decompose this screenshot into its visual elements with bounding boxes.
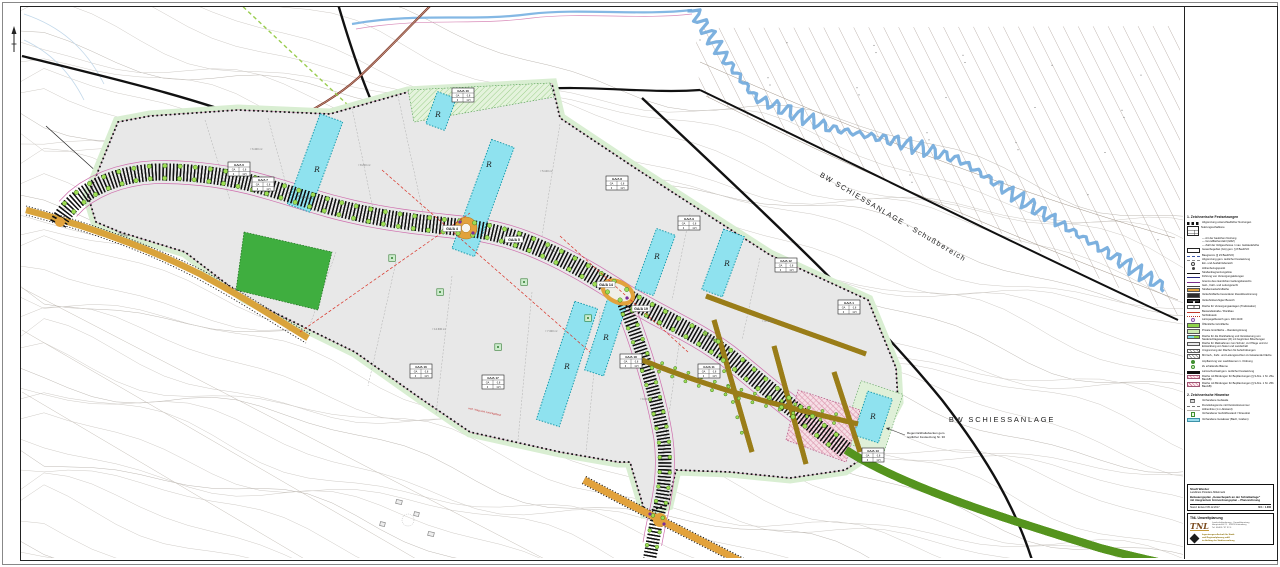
legend-sublabel: — Zahl der Vollgeschosse / max. Gebäudeh…: [1202, 244, 1274, 247]
legend-row: Zu erhaltende Bäume: [1187, 365, 1274, 369]
legend-row: Abgrenzung gem. textlicher Festsetzung: [1187, 258, 1274, 261]
legend-row: Führung von Versorgungsleitungen: [1187, 275, 1274, 278]
legend-label: Gewerbegebiet (GA) gem. § 8 BauNVO: [1202, 248, 1274, 251]
legend-symbol-boxline: [1187, 248, 1200, 253]
legend-row: Verkehrsfläche besonderer Zweckbestimmun…: [1187, 293, 1274, 298]
legend-symbol-line: [1187, 273, 1200, 274]
legend-label: Straßenverkehrsfläche: [1202, 288, 1274, 291]
legend-label: Sichtdreieck: [1202, 314, 1274, 317]
legend-label: Flurstücksgrenze mit Flurstücksnummer: [1202, 404, 1274, 407]
legend-symbol-sw: [1187, 293, 1200, 298]
legend-symbol-swH: [1187, 354, 1200, 359]
legend-symbol-sq3: [1187, 222, 1200, 225]
tnl-logo: TNL: [1190, 522, 1209, 532]
legend-row: Flurstücksgrenze mit Flurstücksnummer: [1187, 404, 1274, 407]
firm-name: TNL Umweltplanung: [1190, 516, 1271, 520]
legend-symbol-glyphbld: [1190, 399, 1195, 403]
legend-label: Umgrenzung der Flächen für Aufschüttunge…: [1202, 349, 1274, 352]
legend-label: Fläche für Maßnahmen zum Schutz, zur Pfl…: [1202, 342, 1274, 348]
legend-symbol-dots: [1187, 316, 1200, 317]
plan-title-line2: mit integriertem Grünordnungsplan – Plan…: [1190, 498, 1260, 502]
legend-symbol-swDot: [1187, 299, 1200, 304]
title-block-project: Stadt Werder Landkreis Potsdam-Mittelmar…: [1187, 484, 1274, 511]
legend-label: Verkehrsberuhigter Bereich: [1202, 299, 1274, 302]
legend-row: Grenze des räumlichen Geltungsbereichs: [1187, 280, 1274, 283]
legend-row: Baugrenze (§ 23 BauNVO): [1187, 254, 1274, 257]
legend-row: Fläche mit Bindungen für Bepflanzungen (…: [1187, 382, 1274, 388]
legend-row: Vorhandene Gewässer (Bach, Graben): [1187, 418, 1274, 423]
legend-row: Fläche für die Rückhaltung und Versicker…: [1187, 335, 1274, 341]
legend-symbol-lineThin: [1187, 410, 1200, 411]
legend-row: Anpflanzung von Laubbäumen 1. Ordnung: [1187, 360, 1274, 364]
legend-label: Bestandsstraße / Rückbau: [1202, 310, 1274, 313]
legend-label: Anpflanzung von Laubbäumen 1. Ordnung: [1202, 360, 1274, 363]
legend-label: Nutzungsschablone: [1201, 226, 1274, 229]
legend-label: Verkehrsfläche besonderer Zweckbestimmun…: [1202, 293, 1274, 296]
legend-label: Höhenlinie (1 m-Abstand): [1202, 408, 1274, 411]
legend-label: Vorhandene Gewässer (Bach, Graben): [1202, 418, 1274, 421]
legend-row: Geh-, Fahr- und Leitungsrecht: [1187, 284, 1274, 287]
legend-row: Mit Geh-, Fahr- und Leitungsrechten zu b…: [1187, 354, 1274, 359]
legend-label: Fläche für Versorgungsanlagen (Trafostat…: [1202, 305, 1274, 308]
legend-row: Lärmpegelbereich gem. DIN 4109: [1187, 318, 1274, 322]
legend-rows-hinweise: Vorhandene GebäudeFlurstücksgrenze mit F…: [1187, 399, 1274, 422]
legend-row: Fläche für Maßnahmen zum Schutz, zur Pfl…: [1187, 342, 1274, 348]
plan-scale: M 1 : 1.000: [1258, 506, 1271, 509]
plan-sheet: BW SCHIESSANLAGE - Schußbereich BW SCHIE…: [0, 0, 1280, 567]
legend-rows-festsetzungen: Abgrenzung unterschiedlicher NutzungenNu…: [1187, 221, 1274, 388]
legend-label: Zu erhaltende Bäume: [1202, 365, 1274, 368]
map-frame: [20, 6, 1278, 561]
legend-label: Lärmpegelbereich gem. DIN 4109: [1202, 318, 1274, 321]
legend-row: Gewerbegebiet (GA) gem. § 8 BauNVO: [1187, 248, 1274, 253]
legend-label: Mit Geh-, Fahr- und Leitungsrechten zu b…: [1202, 354, 1274, 357]
north-arrow-icon: [12, 26, 17, 52]
legend-label: Ein- und Ausfahrtsbereich: [1202, 262, 1274, 265]
legend-symbol-dline: [1187, 256, 1200, 257]
legend-label: Grenze des räumlichen Geltungsbereichs: [1202, 280, 1274, 283]
legend-symbol-tree: [1191, 262, 1195, 266]
legend-label: Fläche mit Bindungen für Bepflanzungen (…: [1202, 382, 1274, 388]
plan-status: Stand: Entwurf 05.12.2017: [1190, 506, 1220, 509]
legend-symbol-dot: [1192, 267, 1195, 270]
legend-label: Fläche mit Bindungen für Bepflanzungen (…: [1202, 375, 1274, 381]
legend-section1-title: 1. Zeichnerische Festsetzungen: [1187, 215, 1274, 219]
legend-label: Abgrenzung gem. textlicher Festsetzung: [1202, 258, 1274, 261]
legend-symbol-line: [1187, 282, 1200, 283]
legend-section2-title: 2. Zeichnerische Hinweise: [1187, 393, 1274, 397]
district: Landkreis Potsdam-Mittelmark: [1190, 491, 1271, 494]
legend-label: Geh-, Fahr- und Leitungsrecht: [1202, 284, 1274, 287]
legend-label: Höhenbezugspunkt: [1202, 267, 1274, 270]
legend-symbol-swH: [1187, 349, 1200, 354]
legend-row: Ein- und Ausfahrtsbereich: [1187, 262, 1274, 266]
municipality: Stadt Werder: [1190, 487, 1271, 491]
legend-row: Straßenbegrenzungslinie: [1187, 271, 1274, 274]
legend-label: Lärmschutzwall gem. textlicher Festsetzu…: [1202, 370, 1274, 373]
legend-symbol-swC: [1187, 418, 1200, 423]
legend-label: Fläche für die Rückhaltung und Versicker…: [1202, 335, 1274, 341]
title-block-firm: TNL Umweltplanung TNL Landschaftsplanung…: [1187, 513, 1274, 545]
legend-row: Straßenverkehrsfläche: [1187, 288, 1274, 293]
legend-panel: 1. Zeichnerische Festsetzungen Abgrenzun…: [1187, 215, 1274, 423]
legend-row: Höhenbezugspunkt: [1187, 267, 1274, 270]
legend-symbol-dotG2: [1191, 365, 1195, 369]
legend-symbol-bar: [1187, 371, 1200, 374]
legend-symbol-line: [1187, 286, 1200, 287]
legend-symbol-sw: [1187, 342, 1200, 347]
legend-label: Abgrenzung unterschiedlicher Nutzungen: [1202, 221, 1274, 224]
legend-label: Vorhandener Gehölzbestand / Streuobst: [1202, 412, 1274, 415]
legend-symbol-sw: [1187, 288, 1200, 293]
legend-symbol-dline: [1187, 260, 1200, 261]
title-block: Stadt Werder Landkreis Potsdam-Mittelmar…: [1187, 484, 1274, 545]
firm-address: Landschaftsplanung · UmweltberatungHaupt…: [1212, 522, 1249, 530]
partner-lines: Ingenieurgesellschaft für Stadt-und Regi…: [1202, 534, 1235, 542]
legend-symbol-sw: [1187, 329, 1200, 334]
legend-symbol-lineDot: [1187, 406, 1200, 407]
legend-symbol-sw2: [1187, 335, 1200, 340]
legend-row: Öffentliche Grünfläche: [1187, 323, 1274, 328]
legend-symbol-swHp: [1187, 375, 1200, 380]
legend-row: Vorhandener Gehölzbestand / Streuobst: [1187, 412, 1274, 417]
legend-divider: [1184, 6, 1185, 559]
legend-row: Fläche für Versorgungsanlagen (Trafostat…: [1187, 305, 1274, 310]
legend-symbol-schab: [1187, 226, 1199, 236]
legend-row: Bestandsstraße / Rückbau: [1187, 310, 1274, 313]
legend-symbol-circleP: [1191, 318, 1195, 322]
legend-symbol-line: [1187, 277, 1200, 278]
legend-row: Vorhandene Gebäude: [1187, 399, 1274, 403]
legend-row: Private Grünfläche – Randeingrünung: [1187, 329, 1274, 334]
legend-symbol-dotG: [1191, 360, 1195, 364]
partner-logo-icon: [1190, 533, 1200, 543]
legend-row: Abgrenzung unterschiedlicher Nutzungen: [1187, 221, 1274, 225]
legend-label: Führung von Versorgungsleitungen: [1202, 275, 1274, 278]
legend-row: Nutzungsschablone: [1187, 226, 1274, 236]
legend-row: Verkehrsberuhigter Bereich: [1187, 299, 1274, 304]
legend-row: Lärmschutzwall gem. textlicher Festsetzu…: [1187, 370, 1274, 374]
legend-row: Sichtdreieck: [1187, 314, 1274, 317]
legend-row: Höhenlinie (1 m-Abstand): [1187, 408, 1274, 411]
legend-label: Baugrenze (§ 23 BauNVO): [1202, 254, 1274, 257]
legend-label: Vorhandene Gebäude: [1202, 399, 1274, 402]
legend-symbol-sw: [1187, 323, 1200, 328]
legend-row: Umgrenzung der Flächen für Aufschüttunge…: [1187, 349, 1274, 354]
legend-symbol-sqGlyph: [1191, 412, 1196, 417]
legend-row: Fläche mit Bindungen für Bepflanzungen (…: [1187, 375, 1274, 381]
legend-symbol-line: [1187, 312, 1200, 313]
legend-label: Straßenbegrenzungslinie: [1202, 271, 1274, 274]
legend-label: Öffentliche Grünfläche: [1202, 323, 1274, 326]
legend-symbol-swX: [1187, 305, 1200, 310]
legend-label: Private Grünfläche – Randeingrünung: [1202, 329, 1274, 332]
legend-symbol-swHp: [1187, 382, 1200, 387]
